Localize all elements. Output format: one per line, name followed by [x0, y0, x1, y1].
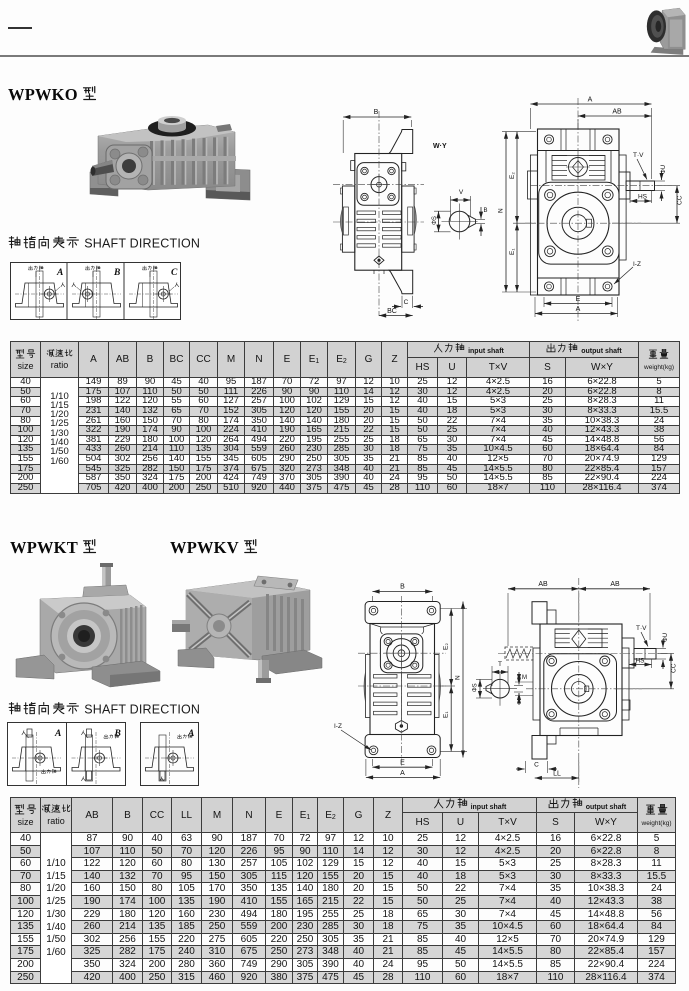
svg-text:A: A — [588, 97, 593, 104]
svg-text:AB: AB — [610, 581, 620, 588]
svg-text:E₁: E₁ — [443, 711, 450, 718]
svg-text:E: E — [400, 760, 405, 767]
svg-text:LL: LL — [553, 771, 561, 778]
svg-text:N: N — [498, 208, 505, 213]
svg-text:A: A — [400, 770, 405, 777]
svg-text:T·V: T·V — [636, 625, 647, 632]
svg-text:T·V: T·V — [633, 152, 644, 159]
svg-text:I-Z: I-Z — [633, 261, 641, 268]
svg-text:HS: HS — [635, 658, 645, 665]
svg-text:A: A — [56, 268, 63, 278]
svg-text:B: B — [400, 584, 405, 591]
svg-text:CC: CC — [671, 663, 678, 673]
svg-text:E₂: E₂ — [443, 643, 450, 650]
svg-text:T: T — [498, 661, 502, 668]
svg-text:N: N — [455, 675, 462, 680]
svg-text:B: B — [113, 268, 120, 278]
svg-text:HS: HS — [638, 194, 648, 201]
svg-text:AB: AB — [612, 109, 622, 116]
svg-text:C: C — [534, 762, 539, 769]
svg-text:A: A — [54, 729, 61, 739]
svg-text:ΦS: ΦS — [472, 683, 478, 692]
svg-text:E₂: E₂ — [509, 172, 516, 179]
svg-text:C: C — [171, 268, 178, 278]
svg-text:M: M — [522, 675, 527, 681]
svg-text:W·Y: W·Y — [433, 143, 447, 150]
svg-text:I-Z: I-Z — [334, 723, 342, 730]
svg-text:E₁: E₁ — [509, 248, 516, 255]
svg-text:B: B — [374, 109, 379, 116]
svg-text:ΦU: ΦU — [663, 633, 669, 642]
svg-text:BC: BC — [387, 308, 397, 315]
svg-text:ΦU: ΦU — [661, 165, 667, 174]
svg-text:V: V — [459, 189, 464, 196]
svg-text:B: B — [484, 208, 488, 214]
svg-text:CC: CC — [677, 195, 684, 205]
svg-text:C: C — [404, 299, 409, 306]
svg-text:ΦS: ΦS — [432, 216, 438, 225]
svg-text:AB: AB — [538, 581, 548, 588]
